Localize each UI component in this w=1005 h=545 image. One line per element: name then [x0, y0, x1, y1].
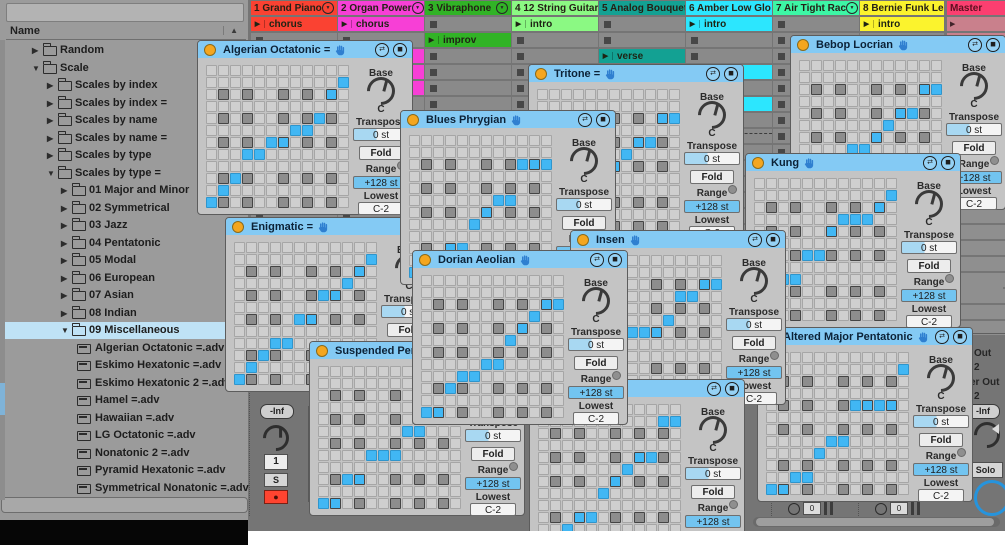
grid-cell[interactable] [206, 65, 217, 76]
grid-cell[interactable] [814, 286, 825, 297]
grid-cell[interactable] [627, 363, 638, 374]
grid-cell[interactable] [469, 159, 480, 170]
grid-cell[interactable] [651, 363, 662, 374]
grid-cell[interactable] [294, 326, 305, 337]
grid-cell[interactable] [505, 395, 516, 406]
grid-cell[interactable] [445, 347, 456, 358]
grid-cell[interactable] [874, 286, 885, 297]
grid-cell[interactable] [206, 185, 217, 196]
grid-cell[interactable] [778, 460, 789, 471]
grid-cell[interactable] [669, 197, 680, 208]
grid-cell[interactable] [206, 149, 217, 160]
grid-cell[interactable] [790, 190, 801, 201]
grid-cell[interactable] [414, 474, 425, 485]
grid-cell[interactable] [669, 149, 680, 160]
grid-cell[interactable] [790, 178, 801, 189]
grid-cell[interactable] [862, 388, 873, 399]
grid-cell[interactable] [838, 448, 849, 459]
grid-cell[interactable] [802, 448, 813, 459]
grid-cell[interactable] [838, 352, 849, 363]
grid-cell[interactable] [378, 414, 389, 425]
grid-cell[interactable] [790, 364, 801, 375]
grid-cell[interactable] [711, 291, 722, 302]
grid-cell[interactable] [862, 400, 873, 411]
grid-cell[interactable] [302, 137, 313, 148]
grid-cell[interactable] [457, 275, 468, 286]
grid-cell[interactable] [378, 450, 389, 461]
grid-cell[interactable] [242, 185, 253, 196]
tree-arrow-icon[interactable]: ▶ [61, 186, 67, 195]
grid-cell[interactable] [835, 120, 846, 131]
grid-cell[interactable] [421, 383, 432, 394]
grid-cell[interactable] [366, 450, 377, 461]
grid-cell[interactable] [314, 185, 325, 196]
grid-cell[interactable] [242, 65, 253, 76]
grid-cell[interactable] [931, 132, 942, 143]
grid-cell[interactable] [469, 407, 480, 418]
grid-cell[interactable] [445, 195, 456, 206]
grid-cell[interactable] [886, 364, 897, 375]
grid-cell[interactable] [230, 137, 241, 148]
grid-cell[interactable] [493, 323, 504, 334]
grid-cell[interactable] [639, 303, 650, 314]
tree-arrow-icon[interactable]: ▶ [47, 134, 53, 143]
grid-cell[interactable] [541, 207, 552, 218]
grid-cell[interactable] [318, 474, 329, 485]
grid-cell[interactable] [802, 412, 813, 423]
grid-cell[interactable] [766, 436, 777, 447]
grid-cell[interactable] [826, 274, 837, 285]
grid-cell[interactable] [669, 113, 680, 124]
grid-cell[interactable] [562, 500, 573, 511]
grid-cell[interactable] [481, 299, 492, 310]
grid-cell[interactable] [438, 438, 449, 449]
grid-cell[interactable] [330, 498, 341, 509]
grid-cell[interactable] [711, 255, 722, 266]
grid-cell[interactable] [898, 484, 909, 495]
grid-cell[interactable] [919, 84, 930, 95]
grid-cell[interactable] [469, 395, 480, 406]
grid-cell[interactable] [481, 323, 492, 334]
tree-arrow-icon[interactable]: ▶ [61, 274, 67, 283]
grid-cell[interactable] [658, 440, 669, 451]
grid-cell[interactable] [302, 65, 313, 76]
grid-cell[interactable] [874, 424, 885, 435]
grid-cell[interactable] [234, 338, 245, 349]
grid-cell[interactable] [541, 311, 552, 322]
grid-cell[interactable] [790, 484, 801, 495]
track-dropdown-icon[interactable]: ▼ [846, 2, 858, 14]
grid-cell[interactable] [802, 310, 813, 321]
clip-stop-icon[interactable] [778, 101, 785, 108]
grid-cell[interactable] [610, 512, 621, 523]
grid-cell[interactable] [290, 137, 301, 148]
grid-cell[interactable] [541, 147, 552, 158]
grid-cell[interactable] [541, 323, 552, 334]
grid-cell[interactable] [326, 185, 337, 196]
grid-cell[interactable] [366, 402, 377, 413]
grid-cell[interactable] [290, 185, 301, 196]
grid-cell[interactable] [517, 311, 528, 322]
grid-cell[interactable] [862, 262, 873, 273]
grid-cell[interactable] [670, 512, 681, 523]
grid-cell[interactable] [493, 171, 504, 182]
grid-cell[interactable] [907, 60, 918, 71]
grid-cell[interactable] [778, 484, 789, 495]
grid-cell[interactable] [433, 147, 444, 158]
grid-cell[interactable] [481, 407, 492, 418]
grid-cell[interactable] [886, 460, 897, 471]
grid-cell[interactable] [766, 472, 777, 483]
grid-cell[interactable] [574, 488, 585, 499]
browser-search-box[interactable] [6, 3, 244, 22]
grid-cell[interactable] [586, 500, 597, 511]
grid-cell[interactable] [306, 314, 317, 325]
grid-cell[interactable] [290, 101, 301, 112]
grid-cell[interactable] [790, 436, 801, 447]
grid-cell[interactable] [574, 512, 585, 523]
grid-cell[interactable] [258, 242, 269, 253]
grid-cell[interactable] [541, 395, 552, 406]
grid-cell[interactable] [886, 352, 897, 363]
grid-cell[interactable] [919, 108, 930, 119]
grid-cell[interactable] [426, 426, 437, 437]
grid-cell[interactable] [517, 347, 528, 358]
grid-cell[interactable] [651, 339, 662, 350]
grid-cell[interactable] [481, 359, 492, 370]
grid-cell[interactable] [517, 359, 528, 370]
grid-cell[interactable] [306, 278, 317, 289]
grid-cell[interactable] [645, 161, 656, 172]
grid-cell[interactable] [390, 450, 401, 461]
fold-button[interactable]: Fold [732, 336, 776, 350]
grid-cell[interactable] [206, 89, 217, 100]
grid-cell[interactable] [378, 402, 389, 413]
grid-cell[interactable] [639, 291, 650, 302]
grid-cell[interactable] [553, 299, 564, 310]
grid-cell[interactable] [517, 335, 528, 346]
grid-cell[interactable] [438, 450, 449, 461]
grid-cell[interactable] [537, 89, 548, 100]
grid-cell[interactable] [553, 383, 564, 394]
grid-cell[interactable] [850, 262, 861, 273]
grid-cell[interactable] [907, 108, 918, 119]
grid-cell[interactable] [886, 412, 897, 423]
grid-cell[interactable] [874, 460, 885, 471]
grid-cell[interactable] [330, 378, 341, 389]
grid-cell[interactable] [639, 363, 650, 374]
grid-cell[interactable] [766, 448, 777, 459]
grid-cell[interactable] [838, 178, 849, 189]
hot-swap-icon[interactable]: ⇄ [968, 38, 982, 52]
grid-cell[interactable] [493, 135, 504, 146]
grid-cell[interactable] [541, 219, 552, 230]
grid-cell[interactable] [354, 302, 365, 313]
grid-cell[interactable] [814, 412, 825, 423]
grid-cell[interactable] [414, 450, 425, 461]
grid-cell[interactable] [409, 231, 420, 242]
grid-cell[interactable] [421, 159, 432, 170]
grid-cell[interactable] [318, 402, 329, 413]
grid-cell[interactable] [318, 290, 329, 301]
grid-cell[interactable] [529, 359, 540, 370]
grid-cell[interactable] [553, 407, 564, 418]
clip-stop-icon[interactable] [778, 21, 785, 28]
grid-cell[interactable] [294, 278, 305, 289]
grid-cell[interactable] [481, 183, 492, 194]
grid-cell[interactable] [541, 183, 552, 194]
hot-swap-icon[interactable]: ⇄ [578, 113, 592, 127]
grid-cell[interactable] [562, 452, 573, 463]
grid-cell[interactable] [242, 173, 253, 184]
grid-cell[interactable] [457, 159, 468, 170]
grid-cell[interactable] [450, 438, 461, 449]
save-preset-icon[interactable]: ◼ [393, 43, 407, 57]
grid-cell[interactable] [330, 302, 341, 313]
grid-cell[interactable] [802, 238, 813, 249]
grid-cell[interactable] [862, 298, 873, 309]
grid-cell[interactable] [802, 226, 813, 237]
session-clip[interactable]: ▶intro [686, 17, 772, 31]
grid-cell[interactable] [621, 113, 632, 124]
grid-cell[interactable] [402, 498, 413, 509]
grid-cell[interactable] [450, 486, 461, 497]
grid-cell[interactable] [230, 125, 241, 136]
grid-cell[interactable] [802, 376, 813, 387]
grid-cell[interactable] [598, 440, 609, 451]
grid-cell[interactable] [505, 323, 516, 334]
grid-cell[interactable] [550, 500, 561, 511]
browser-vertical-scrollbar[interactable] [0, 40, 5, 500]
grid-cell[interactable] [862, 286, 873, 297]
grid-cell[interactable] [766, 412, 777, 423]
grid-cell[interactable] [633, 137, 644, 148]
grid-cell[interactable] [445, 383, 456, 394]
grid-cell[interactable] [657, 161, 668, 172]
grid-cell[interactable] [450, 498, 461, 509]
grid-cell[interactable] [457, 207, 468, 218]
grid-cell[interactable] [517, 207, 528, 218]
grid-cell[interactable] [627, 351, 638, 362]
grid-cell[interactable] [481, 159, 492, 170]
grid-cell[interactable] [505, 147, 516, 158]
transpose-value-box[interactable]: 0 st [901, 241, 957, 254]
grid-cell[interactable] [586, 452, 597, 463]
grid-cell[interactable] [282, 254, 293, 265]
grid-cell[interactable] [699, 267, 710, 278]
grid-cell[interactable] [409, 159, 420, 170]
grid-cell[interactable] [338, 149, 349, 160]
grid-cell[interactable] [597, 89, 608, 100]
grid-cell[interactable] [826, 364, 837, 375]
grid-cell[interactable] [445, 335, 456, 346]
grid-cell[interactable] [378, 438, 389, 449]
grid-cell[interactable] [421, 135, 432, 146]
grid-cell[interactable] [586, 512, 597, 523]
grid-cell[interactable] [242, 137, 253, 148]
grid-cell[interactable] [850, 412, 861, 423]
grid-cell[interactable] [342, 462, 353, 473]
grid-cell[interactable] [390, 474, 401, 485]
grid-cell[interactable] [438, 426, 449, 437]
grid-cell[interactable] [621, 125, 632, 136]
grid-cell[interactable] [553, 359, 564, 370]
grid-cell[interactable] [627, 327, 638, 338]
grid-cell[interactable] [258, 362, 269, 373]
grid-cell[interactable] [469, 147, 480, 158]
track-dropdown-icon[interactable]: ▼ [496, 2, 508, 14]
device-titlebar[interactable]: Altered Major Pentatonic ⇄ ◼ [758, 328, 972, 345]
grid-cell[interactable] [669, 173, 680, 184]
scale-device-window-dorian-aeolian[interactable]: Dorian Aeolian ⇄ ◼ Base C Transpose 0 st… [412, 250, 628, 425]
grid-cell[interactable] [314, 161, 325, 172]
grid-cell[interactable] [493, 219, 504, 230]
grid-cell[interactable] [529, 275, 540, 286]
grid-cell[interactable] [574, 476, 585, 487]
grid-cell[interactable] [838, 412, 849, 423]
grid-cell[interactable] [426, 462, 437, 473]
grid-cell[interactable] [826, 286, 837, 297]
grid-cell[interactable] [469, 183, 480, 194]
grid-cell[interactable] [633, 209, 644, 220]
grid-cell[interactable] [306, 254, 317, 265]
grid-cell[interactable] [426, 450, 437, 461]
grid-cell[interactable] [826, 352, 837, 363]
grid-cell[interactable] [306, 242, 317, 253]
grid-cell[interactable] [627, 339, 638, 350]
grid-cell[interactable] [826, 376, 837, 387]
grid-cell[interactable] [278, 101, 289, 112]
grid-cell[interactable] [895, 120, 906, 131]
transpose-value-box[interactable]: 0 st [946, 123, 1002, 136]
grid-cell[interactable] [302, 77, 313, 88]
grid-cell[interactable] [354, 402, 365, 413]
clip-stop-icon[interactable] [778, 69, 785, 76]
grid-cell[interactable] [330, 450, 341, 461]
grid-cell[interactable] [651, 291, 662, 302]
device-titlebar[interactable]: Tritone = ⇄ ◼ [529, 65, 743, 82]
grid-cell[interactable] [469, 371, 480, 382]
grid-cell[interactable] [687, 351, 698, 362]
grid-cell[interactable] [318, 242, 329, 253]
grid-cell[interactable] [493, 147, 504, 158]
grid-cell[interactable] [342, 450, 353, 461]
grid-cell[interactable] [711, 339, 722, 350]
grid-cell[interactable] [290, 197, 301, 208]
grid-cell[interactable] [874, 274, 885, 285]
grid-cell[interactable] [517, 407, 528, 418]
fold-button[interactable]: Fold [359, 146, 403, 160]
grid-cell[interactable] [850, 226, 861, 237]
grid-cell[interactable] [266, 173, 277, 184]
pan-knob-icon[interactable] [875, 503, 887, 515]
grid-cell[interactable] [314, 89, 325, 100]
grid-cell[interactable] [646, 416, 657, 427]
device-activator-led[interactable] [419, 254, 431, 266]
tree-arrow-icon[interactable]: ▼ [47, 169, 55, 178]
grid-cell[interactable] [850, 448, 861, 459]
grid-cell[interactable] [610, 464, 621, 475]
grid-cell[interactable] [469, 287, 480, 298]
grid-cell[interactable] [457, 171, 468, 182]
grid-cell[interactable] [651, 327, 662, 338]
map-mode-dot[interactable] [509, 462, 518, 471]
grid-cell[interactable] [414, 498, 425, 509]
grid-cell[interactable] [433, 395, 444, 406]
grid-cell[interactable] [802, 352, 813, 363]
grid-cell[interactable] [634, 512, 645, 523]
grid-cell[interactable] [778, 472, 789, 483]
grid-cell[interactable] [493, 335, 504, 346]
grid-cell[interactable] [254, 185, 265, 196]
browser-item[interactable]: ▶ 05 Modal [3, 252, 245, 269]
grid-cell[interactable] [814, 352, 825, 363]
lowest-value-box[interactable]: C-2 [470, 503, 516, 516]
session-clip[interactable]: ▶verse [599, 49, 685, 63]
track-dropdown-icon[interactable]: ▼ [322, 2, 334, 14]
grid-cell[interactable] [378, 486, 389, 497]
grid-cell[interactable] [823, 84, 834, 95]
grid-cell[interactable] [282, 362, 293, 373]
grid-cell[interactable] [610, 440, 621, 451]
grid-cell[interactable] [651, 279, 662, 290]
grid-cell[interactable] [481, 287, 492, 298]
grid-cell[interactable] [598, 452, 609, 463]
grid-cell[interactable] [874, 400, 885, 411]
grid-cell[interactable] [421, 195, 432, 206]
grid-cell[interactable] [445, 407, 456, 418]
grid-cell[interactable] [610, 428, 621, 439]
grid-cell[interactable] [306, 290, 317, 301]
save-preset-icon[interactable]: ◼ [953, 330, 967, 344]
grid-cell[interactable] [481, 395, 492, 406]
grid-cell[interactable] [553, 395, 564, 406]
device-titlebar[interactable]: Kung ⇄ ◼ [746, 154, 960, 171]
grid-cell[interactable] [294, 266, 305, 277]
grid-cell[interactable] [634, 488, 645, 499]
grid-cell[interactable] [886, 448, 897, 459]
grid-cell[interactable] [826, 178, 837, 189]
grid-cell[interactable] [390, 498, 401, 509]
grid-cell[interactable] [823, 96, 834, 107]
grid-cell[interactable] [645, 209, 656, 220]
grid-cell[interactable] [330, 414, 341, 425]
grid-cell[interactable] [670, 476, 681, 487]
save-preset-icon[interactable]: ◼ [986, 38, 1000, 52]
grid-cell[interactable] [366, 266, 377, 277]
grid-cell[interactable] [302, 125, 313, 136]
grid-cell[interactable] [663, 315, 674, 326]
transpose-value-box[interactable]: 0 st [685, 467, 741, 480]
grid-cell[interactable] [342, 474, 353, 485]
grid-cell[interactable] [294, 254, 305, 265]
grid-cell[interactable] [318, 266, 329, 277]
grid-cell[interactable] [669, 185, 680, 196]
grid-cell[interactable] [826, 310, 837, 321]
grid-cell[interactable] [883, 108, 894, 119]
grid-cell[interactable] [633, 173, 644, 184]
grid-cell[interactable] [218, 161, 229, 172]
grid-cell[interactable] [621, 209, 632, 220]
grid-cell[interactable] [645, 89, 656, 100]
grid-cell[interactable] [481, 171, 492, 182]
empty-clip-slot[interactable] [686, 33, 772, 47]
grid-cell[interactable] [326, 161, 337, 172]
empty-clip-slot[interactable] [686, 49, 772, 63]
grid-cell[interactable] [529, 183, 540, 194]
grid-cell[interactable] [342, 278, 353, 289]
grid-cell[interactable] [493, 407, 504, 418]
